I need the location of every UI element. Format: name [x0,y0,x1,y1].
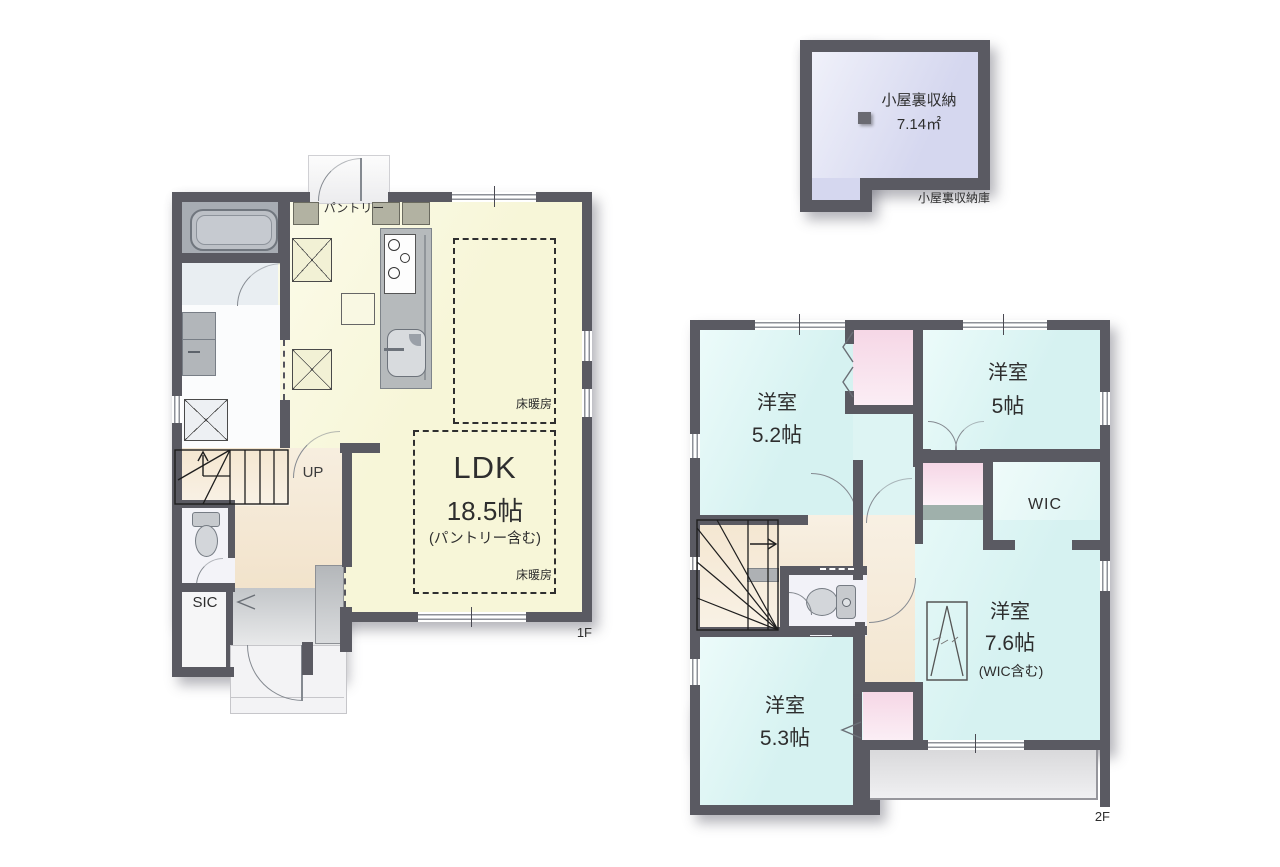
window-f2-top-right-tick [1003,314,1004,335]
floor2-tag: 2F [1076,810,1110,825]
toilet-1f-bowl-icon [195,525,218,557]
sic-label: SIC [184,594,226,611]
room5-size-label: 5帖 [975,395,1041,419]
attic-wall-notch-bottom [860,178,990,190]
room76-name-label: 洋室 [973,601,1047,624]
room76-size-label: 7.6帖 [970,632,1050,656]
f2-wall-5-bottom-right [980,449,1100,459]
closet-top-center [853,330,913,408]
ldk-note-label: (パントリー含む) [405,531,565,548]
f2-wall-wic-bottom-right [1072,540,1100,550]
toilet-2f-tank-icon [836,585,856,619]
f2-wall-wic-bottom-left [983,540,1015,550]
window-f2-right-lower [1100,561,1110,591]
washer-pan-icon [184,399,228,441]
bathtub-icon [190,209,278,251]
f1-wall-sic-bottom [172,667,234,677]
floor-heating-label-1: 床暖房 [492,398,552,412]
f1-wall-bath-bottom [182,253,288,263]
room53-size-label: 5.3帖 [745,727,825,751]
f1-wall-kitchen-stub [340,443,380,453]
f2-wall-center-stub [853,460,863,580]
pantry-shelf-icon-3 [402,202,430,225]
window-f2-left-lower [690,659,700,685]
pantry-label: パントリー [316,202,392,216]
f1-wall-sic-right [226,592,233,640]
attic-area-label: 7.14㎡ [857,116,981,133]
f2-wall-toilet-bottom [780,626,867,635]
f2-wall-closet-stub-top [845,330,854,344]
f2-wall-5-bottom-left [923,449,931,459]
window-f2-right-upper [1100,392,1110,425]
window-f1-right-lower [582,389,592,417]
floor-heating-label-2: 床暖房 [492,569,552,583]
f2-wall-balcony-left [862,750,870,808]
vanity-icon [182,312,216,376]
room76-note-label: (WIC含む) [962,663,1060,679]
attic-caption-label: 小屋裏収納庫 [898,192,990,206]
attic-wall-right [978,40,990,190]
window-f2-balcony-door [928,740,1024,750]
f2-wall-52-bottom [700,515,808,525]
f1-wall-lavatory-right-lower [280,400,290,448]
f1-wall-toilet-bottom [172,583,235,592]
f1-wall-lavatory-right-upper [280,263,290,340]
attic-wall-top [800,40,990,52]
f1-wall-toilet-right [228,508,235,558]
window-f2-left-middle [690,557,700,570]
stove-icon [384,234,416,294]
window-f2-left-upper [690,434,700,458]
balcony [870,750,1098,800]
room-attic-lower [812,178,860,200]
ldk-name-label: LDK [430,450,540,486]
f2-wall-bottom-left [690,805,870,815]
kitchen-storage-icon-2 [292,349,332,390]
f2-wall-closet-small-left [915,459,923,544]
stairs-up-label: UP [296,464,330,481]
ldk-size-label: 18.5帖 [420,497,550,527]
wic-label: WIC [1014,496,1076,514]
f1-wall-toilet-top [172,500,235,508]
window-f1-bottom-tick [471,607,472,627]
kitchen-table-icon [341,293,375,325]
room5-name-label: 洋室 [971,362,1045,385]
f2-wall-toilet-left [780,575,789,630]
f2-wall-closet-bottom [845,405,923,414]
room-attic [812,52,978,178]
f1-wall-left [172,192,182,677]
attic-wall-left [800,40,812,212]
window-f1-top-tick [494,186,495,207]
window-f1-left [172,396,182,423]
kitchen-storage-icon-1 [292,238,332,282]
window-f2-balcony-tick [975,734,976,753]
room53-name-label: 洋室 [748,695,822,718]
f1-opening-hall-ldk [344,567,346,607]
f2-wall-wic-left [983,462,993,550]
attic-name-label: 小屋裏収納 [857,92,981,109]
attic-wall-bottom [800,200,872,212]
window-f1-right-upper [582,331,592,361]
f1-wall-hall-ldk-lower [340,607,352,652]
floor-plan-canvas: パントリー LDK 18.5帖 (パントリー含む) 床暖房 床暖房 UP SIC… [0,0,1280,867]
toilet-2f-cabinet-dash [820,568,854,570]
room52-name-label: 洋室 [740,392,814,415]
closet-53 [863,692,917,740]
f1-wall-entrance-stub [302,642,313,675]
closet-small [922,463,983,505]
floor1-tag: 1F [558,626,592,641]
room-53 [700,637,853,805]
window-f2-top-left [755,320,845,330]
sink-icon [387,329,426,377]
f2-wall-closet-stub-bottom [845,391,854,405]
f1-wall-hall-ldk [342,443,352,567]
f2-wall-closet53-right [913,682,923,750]
stairs-1f-floor [172,448,290,506]
f1-opening-lavatory-kitchen [283,340,285,400]
room52-size-label: 5.2帖 [737,424,817,448]
window-f2-top-left-tick [799,314,800,335]
window-f2-top-right [963,320,1047,330]
f1-wall-bath-right [278,192,290,263]
window-f1-bottom [418,612,526,622]
f2-wall-top [690,320,1110,330]
f2-wall-closet-right [913,330,923,467]
stair-landing-step [747,568,779,582]
